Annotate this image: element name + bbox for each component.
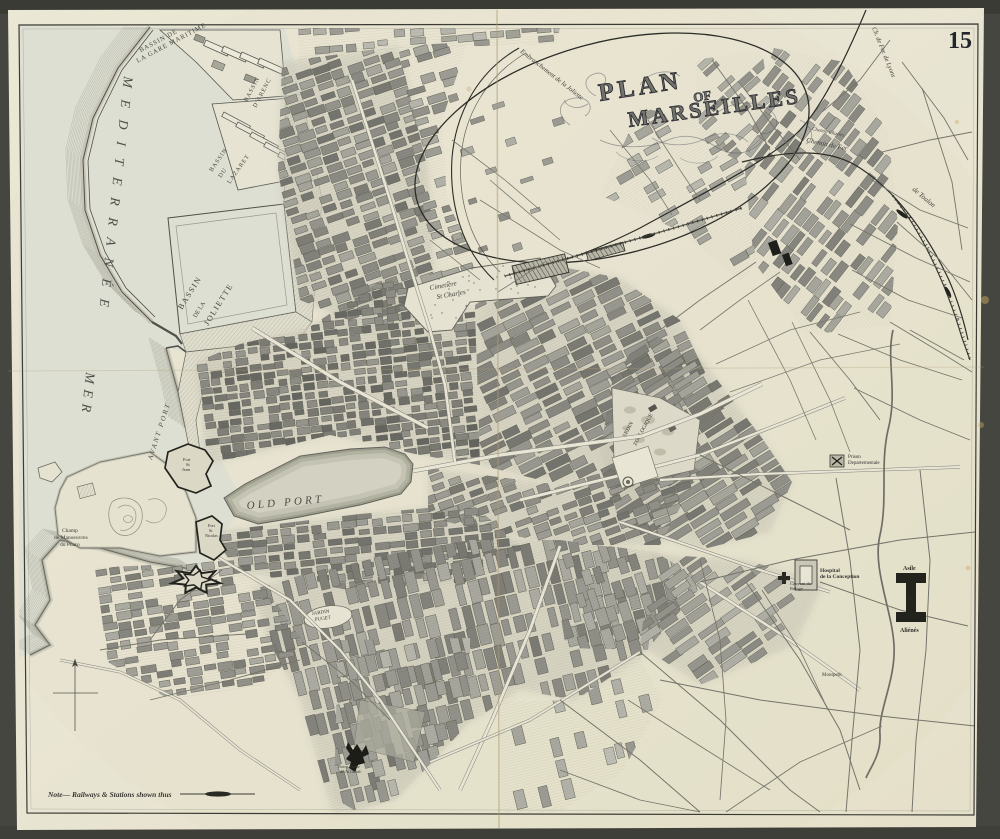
- svg-text:Champ: Champ: [62, 528, 78, 534]
- svg-text:Asile: Asile: [903, 566, 916, 572]
- svg-text:de la Conception: de la Conception: [820, 574, 859, 580]
- svg-text:Refuge: Refuge: [790, 586, 803, 591]
- svg-text:Departementale: Departementale: [848, 461, 880, 466]
- svg-text:des: des: [906, 597, 913, 602]
- svg-text:15: 15: [948, 28, 972, 54]
- svg-text:Montpetit: Montpetit: [822, 673, 842, 678]
- svg-text:de Manoeuvres: de Manoeuvres: [54, 535, 88, 541]
- svg-text:Prison: Prison: [848, 455, 861, 460]
- svg-text:du Pharo: du Pharo: [60, 542, 80, 548]
- svg-text:de la Garde: de la Garde: [340, 769, 361, 774]
- svg-text:Aliénés: Aliénés: [900, 628, 919, 634]
- svg-text:Nicolas: Nicolas: [205, 533, 218, 538]
- svg-text:Jean: Jean: [182, 467, 191, 472]
- svg-text:Note— Railways & Stations show: Note— Railways & Stations shown thus: [47, 790, 172, 799]
